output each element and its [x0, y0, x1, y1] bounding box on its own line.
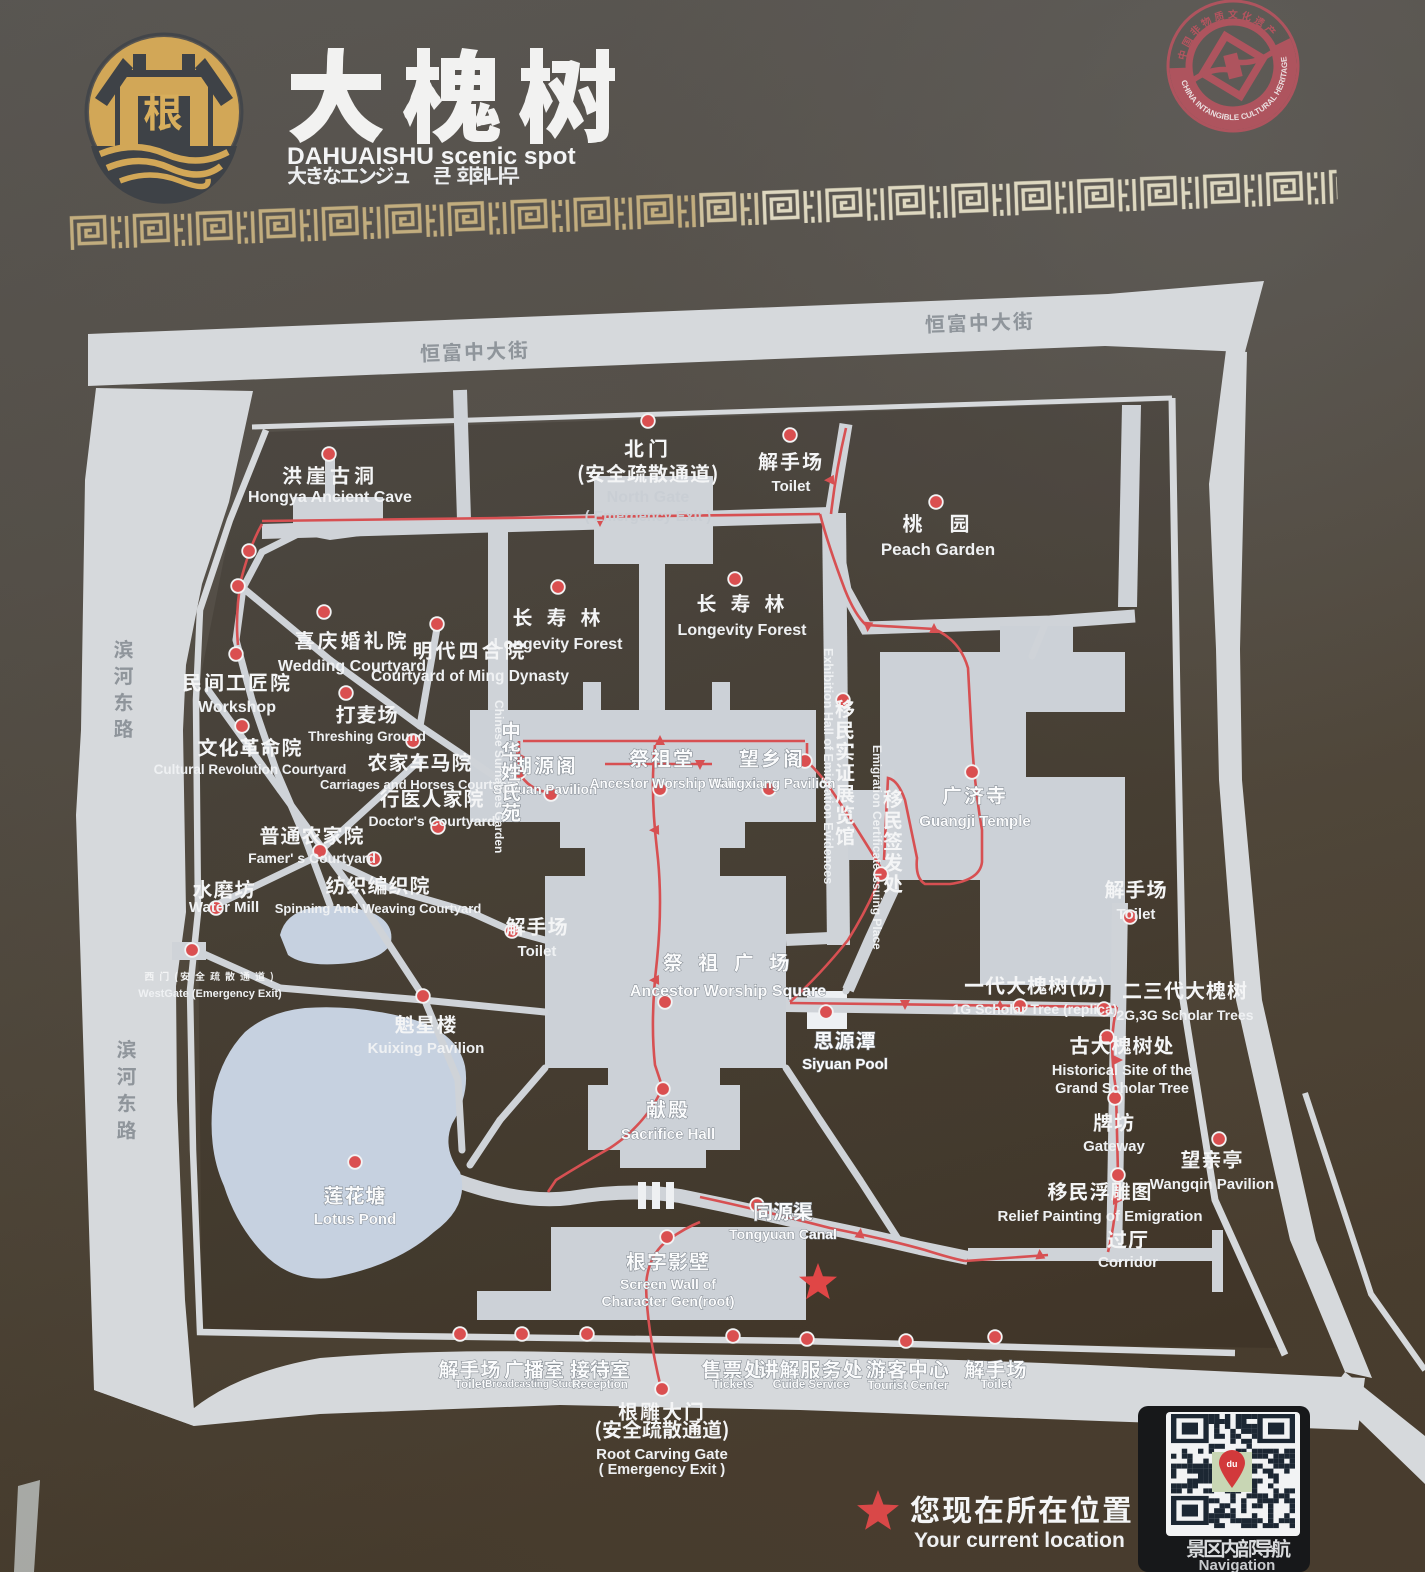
svg-text:WestGate (Emergency Exit): WestGate (Emergency Exit)	[138, 988, 282, 1000]
svg-text:Siyuan Pool: Siyuan Pool	[802, 1056, 888, 1073]
svg-text:Doctor's Courtyard: Doctor's Courtyard	[368, 813, 495, 829]
svg-text:Spinning And Weaving Courtyard: Spinning And Weaving Courtyard	[275, 901, 482, 916]
svg-text:Relief Painting of Emigration: Relief Painting of Emigration	[997, 1208, 1202, 1225]
svg-text:Toilet: Toilet	[518, 943, 557, 960]
svg-text:( Emergency Exit ): ( Emergency Exit )	[599, 1462, 726, 1478]
svg-text:Tourist Center: Tourist Center	[867, 1378, 948, 1392]
svg-text:Historical Site of the: Historical Site of the	[1052, 1063, 1192, 1079]
svg-text:Toilet: Toilet	[980, 1377, 1011, 1391]
svg-text:Water Mill: Water Mill	[189, 899, 259, 916]
svg-text:Root Carving Gate: Root Carving Gate	[596, 1446, 728, 1463]
svg-text:Guide Service: Guide Service	[773, 1379, 850, 1391]
svg-text:Cultural Revolution Courtyard: Cultural Revolution Courtyard	[154, 762, 347, 777]
svg-text:Carriages and Horses Courtyard: Carriages and Horses Courtyard	[320, 777, 520, 792]
svg-text:Wangqin Pavilion: Wangqin Pavilion	[1150, 1176, 1274, 1193]
svg-text:Navigation: Navigation	[1199, 1557, 1276, 1572]
svg-text:Corridor: Corridor	[1098, 1254, 1158, 1271]
svg-text:du: du	[1227, 1459, 1238, 1469]
svg-text:Threshing Ground: Threshing Ground	[308, 729, 426, 744]
svg-text:Gateway: Gateway	[1083, 1138, 1145, 1155]
svg-text:Famer' s Courtyard: Famer' s Courtyard	[248, 850, 376, 866]
svg-text:2G,3G Scholar Trees: 2G,3G Scholar Trees	[1117, 1007, 1254, 1023]
svg-text:Exhibition Hall of Emigration: Exhibition Hall of Emigration Evidences	[821, 648, 835, 884]
svg-text:North Gate: North Gate	[607, 489, 690, 506]
svg-text:Longevity Forest: Longevity Forest	[678, 622, 808, 639]
svg-text:Grand Scholar Tree: Grand Scholar Tree	[1055, 1081, 1189, 1097]
svg-text:Workshop: Workshop	[198, 699, 276, 716]
svg-text:Kuixing Pavilion: Kuixing Pavilion	[368, 1040, 485, 1057]
svg-text:Character Gen(root): Character Gen(root)	[601, 1293, 734, 1309]
svg-text:Your current location: Your current location	[914, 1529, 1125, 1552]
svg-text:Reception: Reception	[572, 1379, 628, 1391]
svg-text:Ancestor Worship Square: Ancestor Worship Square	[630, 983, 826, 1000]
svg-text:DAHUAISHU scenic spot: DAHUAISHU scenic spot	[287, 143, 576, 170]
svg-text:Peach Garden: Peach Garden	[881, 540, 995, 559]
svg-text:Tickets: Tickets	[712, 1377, 753, 1391]
svg-text:Courtyard of Ming Dynasty: Courtyard of Ming Dynasty	[371, 668, 569, 685]
svg-text:Toilet: Toilet	[1117, 906, 1156, 923]
svg-text:Guangji Temple: Guangji Temple	[919, 813, 1030, 830]
svg-text:Hongya Ancient Cave: Hongya Ancient Cave	[248, 489, 412, 506]
svg-text:Broadcasting Studio: Broadcasting Studio	[485, 1379, 583, 1390]
svg-text:Sacrifice Hall: Sacrifice Hall	[621, 1126, 715, 1143]
svg-text:Wangxiang Pavilion: Wangxiang Pavilion	[708, 776, 835, 791]
svg-text:Lotus Pond: Lotus Pond	[314, 1211, 397, 1228]
svg-text:Toilet: Toilet	[454, 1377, 485, 1391]
svg-text:Chinese Surnames Garden: Chinese Surnames Garden	[492, 700, 506, 853]
svg-text:Toilet: Toilet	[772, 478, 811, 495]
svg-text:1G Scholar Tree (replica): 1G Scholar Tree (replica)	[953, 1001, 1118, 1017]
svg-text:Screen Wall of: Screen Wall of	[620, 1276, 716, 1292]
svg-text:( Emergency Exit ): ( Emergency Exit )	[585, 509, 712, 525]
svg-text:Emigration Certificate Issuing: Emigration Certificate Issuing Place	[870, 745, 884, 950]
svg-text:Tongyuan Canal: Tongyuan Canal	[729, 1226, 837, 1242]
